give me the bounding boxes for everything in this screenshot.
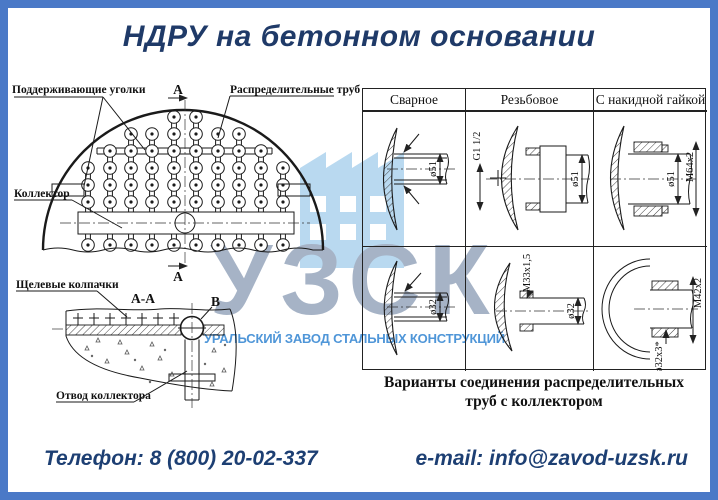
cell-union-nut-dn51: ø51 М64х2 — [594, 112, 707, 247]
table-caption-line2: труб с коллектором — [362, 392, 706, 411]
table-header-welded: Сварное — [363, 89, 466, 112]
dimension-label: ø51 — [570, 171, 581, 187]
dimension-label: ø51 — [666, 171, 677, 187]
dimension-label: ø32х3* — [654, 341, 665, 371]
flyer-page: { "page": { "title": "НДРУ на бетонном о… — [0, 0, 718, 500]
concrete-stipple — [85, 338, 226, 386]
label-slot-caps: Щелевые колпачки — [16, 279, 119, 291]
label-supporting-angles: Поддерживающие уголки — [12, 84, 146, 96]
footer-phone: Телефон: 8 (800) 20-02-337 — [44, 447, 318, 471]
label-collector: Коллектор — [14, 188, 70, 200]
cell-threaded-dn51: G1 1/2 ø51 — [466, 112, 594, 247]
footer-email: e-mail: info@zavod-uzsk.ru — [415, 447, 688, 471]
dimension-label: М64х2 — [685, 152, 696, 182]
table-header-union-nut: С накидной гайкой — [594, 89, 707, 112]
dimension-label: ø32 — [566, 303, 577, 319]
label-distribution-pipes: Распределительные трубы — [230, 84, 360, 96]
cell-threaded-dn32: М33х1,5 ø32 — [466, 247, 594, 371]
collector-pipe — [78, 212, 294, 234]
slot-caps-row — [73, 313, 179, 325]
table-caption-line1: Варианты соединения распределительных — [362, 373, 706, 392]
connections-table: Сварное Резьбовое С накидной гайкой ø51 … — [362, 88, 706, 370]
table-header-threaded: Резьбовое — [466, 89, 594, 112]
cell-union-nut-dn32: М42х2 ø32х3* — [594, 247, 707, 371]
dimension-label: G1 1/2 — [472, 132, 483, 161]
dimension-label: М33х1,5 — [522, 254, 533, 292]
table-caption: Варианты соединения распределительных тр… — [362, 373, 706, 412]
detail-mark-b: В — [211, 294, 220, 309]
assembly-scheme-drawing: А А Поддерживающие уголки Распределитель… — [8, 80, 360, 420]
dimension-label: ø32 — [428, 299, 439, 315]
dimension-label: М42х2 — [693, 278, 704, 308]
cell-welded-dn51: ø51 — [363, 112, 466, 247]
section-title: А-А — [131, 291, 155, 306]
cell-welded-dn32: ø32 — [363, 247, 466, 371]
page-title: НДРУ на бетонном основании — [0, 20, 718, 54]
section-mark-bottom: А — [173, 269, 183, 284]
dimension-label: ø51 — [428, 161, 439, 177]
section-mark-top: А — [173, 82, 183, 97]
